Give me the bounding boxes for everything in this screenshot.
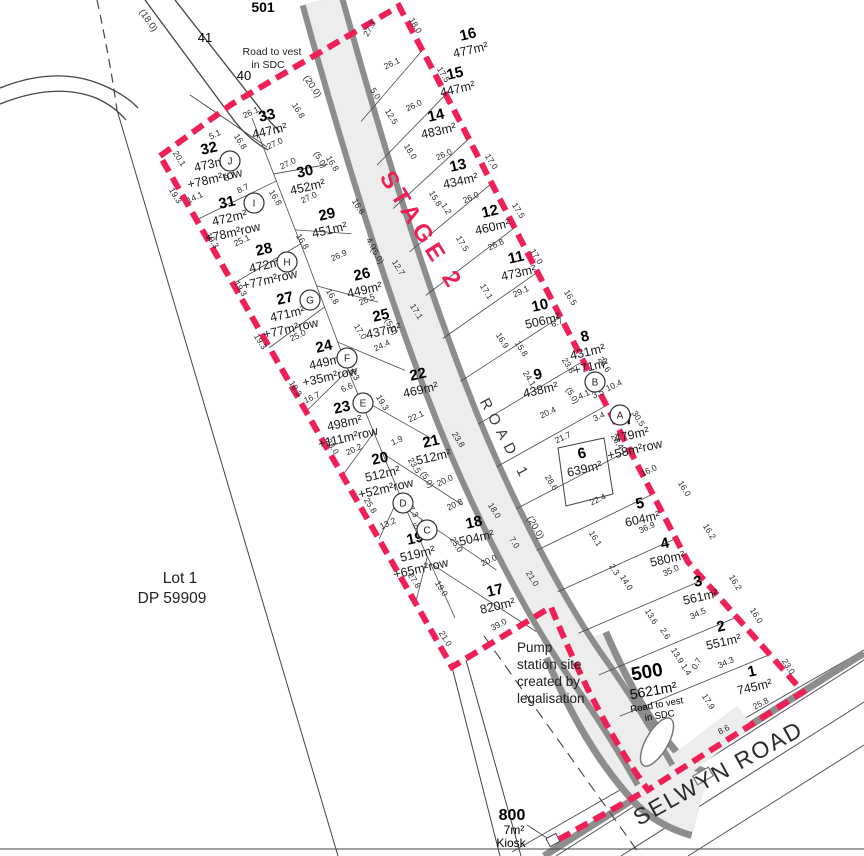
dimension-text: 17.1: [478, 282, 495, 302]
lot-label-14: 14483m²: [416, 104, 458, 142]
lot-area-text: 477m²: [452, 39, 490, 61]
dimension-text: 20.8: [445, 496, 464, 512]
dimension-text: 34.3: [716, 654, 735, 670]
subdivision-plan: STAGE 2 ROAD 1 SELWYN ROAD Lot 1 DP 5990…: [0, 0, 864, 856]
dimension-text: 16.2: [727, 573, 744, 593]
lot40-number: 40: [237, 68, 251, 83]
subdivision-plan-svg: STAGE 2 ROAD 1 SELWYN ROAD Lot 1 DP 5990…: [0, 0, 864, 856]
easement-marker-letter: D: [399, 499, 406, 510]
dimension-text: 14.1: [185, 189, 204, 205]
lot-label-29: 29451m²: [307, 203, 349, 241]
lot-label-4: 4580m²: [645, 532, 687, 570]
dimension-text: 16.8: [267, 188, 284, 208]
lot1-dp-label-line1: Lot 1: [163, 570, 197, 587]
dimension-text: 22.1: [406, 408, 425, 424]
dimension-text: 19.3: [167, 186, 184, 206]
dimension-text: 29.1: [511, 283, 530, 299]
easement-marker-letter: G: [306, 296, 314, 307]
lot-labels-layer: 1745m²2551m²3561m²4580m²5604m²6639m²7479…: [179, 23, 773, 698]
pump-note-line4: legalisation: [517, 691, 585, 706]
lot800-number: 800: [499, 807, 526, 824]
dimension-text: 39.0: [489, 616, 509, 633]
lot-number: 5: [634, 494, 646, 512]
pump-note-line2: station site: [517, 657, 582, 672]
dimension-text: 16.2: [701, 522, 718, 542]
lot-number: 1: [746, 662, 758, 680]
dimension-text: 3.4: [591, 409, 606, 423]
lot-number: 2: [715, 617, 727, 635]
dimension-text: 16.9: [494, 331, 511, 351]
dimension-text: 34.5: [688, 605, 707, 621]
lot800-note: Kiosk: [496, 836, 526, 850]
lot-area-text: 561m²: [682, 586, 720, 608]
dimension-text: 14.0: [618, 573, 635, 593]
lot-area-text: 483m²: [420, 120, 458, 142]
dimension-text: 19.3: [374, 393, 391, 413]
lot-area-text: 551m²: [705, 631, 743, 653]
dimension-text: 16.1: [587, 529, 604, 549]
dimension-text: 16.0: [676, 479, 693, 499]
lot-label-16: 16477m²: [448, 23, 490, 61]
dimension-text: 13.9: [669, 646, 686, 666]
dimension-text: 22.4: [588, 491, 607, 507]
dimension-text: 8.7: [235, 181, 250, 195]
easement-marker-letter: B: [592, 378, 599, 389]
lot1-dp-label-line2: DP 59909: [138, 590, 207, 607]
dimension-text: 19.0: [433, 579, 450, 599]
dimension-text: 2.6: [658, 626, 673, 642]
lot501-note1: Road to vest: [243, 46, 302, 58]
lot501-number: 501: [251, 0, 275, 15]
dimension-text: 20.1: [171, 149, 188, 169]
dimension-text: 17.9: [700, 692, 717, 712]
lot-label-1: 1745m²: [732, 660, 774, 698]
pump-note-line3: created by: [517, 674, 580, 689]
dimension-text: 1.9: [389, 433, 404, 447]
lot-area-text: 434m²: [442, 170, 480, 192]
dimension-text: 26.0: [404, 97, 423, 113]
dimension-text: 18.0: [402, 142, 419, 162]
lot-label-3: 3561m²: [678, 570, 720, 608]
dimension-text: 17.5: [454, 234, 471, 254]
lot-area-text: 473m²: [500, 262, 538, 284]
dimension-text: 20.4: [538, 404, 557, 420]
dimension-text: 13.2: [378, 515, 397, 531]
dimension-text: 16.0: [748, 606, 765, 626]
dimension-text: 16.8: [290, 101, 307, 121]
lot-label-6: 6639m²: [562, 442, 604, 480]
dimension-text: 6.6: [339, 380, 354, 394]
dimension-text: 13.6: [643, 607, 660, 627]
easement-marker-letter: I: [253, 199, 256, 210]
lot-number: 8: [579, 327, 591, 345]
dimension-text: 15.8: [513, 339, 530, 359]
dimension-text: 16.8: [294, 232, 311, 252]
dimension-text: 28.6: [543, 473, 560, 493]
lot-area-text: 639m²: [566, 458, 604, 480]
dimension-text: 16.5: [562, 288, 579, 308]
lot800-area: 7m²: [504, 823, 525, 837]
lot-number: 4: [659, 534, 672, 553]
dimension-text: 16.0: [639, 462, 658, 478]
dimension-text: 26.8: [486, 236, 505, 252]
lot-area-text: 451m²: [311, 219, 349, 241]
dimension-text: 26.9: [329, 247, 348, 263]
dimension-text: 10.4: [604, 377, 623, 393]
lot-area-text: 447m²: [251, 120, 289, 142]
dimension-text: 16.7: [302, 389, 321, 405]
dimension-text: 27.3: [361, 19, 378, 39]
dimension-text: 21.0: [437, 629, 454, 649]
lot41-number: 41: [198, 30, 212, 45]
pump-note-line1: Pump: [517, 640, 552, 655]
easement-marker-letter: E: [360, 399, 367, 410]
dimension-text: 12.5: [383, 107, 400, 127]
dimension-text: 26.0: [461, 189, 480, 205]
dimension-text: 26.1: [382, 55, 401, 71]
dimension-text: 5.1: [207, 127, 222, 141]
stage2-boundary: [160, 6, 803, 790]
easement-marker-letter: C: [423, 526, 430, 537]
dashed-boundary-topleft: [97, 0, 117, 110]
lot501-note2: in SDC: [251, 59, 285, 71]
dimension-text: 16.8: [324, 287, 341, 307]
easement-marker-letter: A: [617, 411, 624, 422]
easement-marker-letter: J: [228, 157, 233, 168]
lot-number: 6: [576, 444, 588, 462]
easement-marker-letter: H: [283, 258, 290, 269]
road-width-18-label: (18.0): [136, 7, 159, 34]
dimension-text: 20.0: [435, 472, 454, 488]
lot-area-text: 745m²: [736, 676, 774, 698]
dimension-text: 21.7: [553, 429, 572, 445]
dimension-text: 27.0: [278, 155, 297, 171]
adjoining-linework-layer: [0, 0, 641, 856]
easement-marker-letter: F: [344, 354, 350, 365]
